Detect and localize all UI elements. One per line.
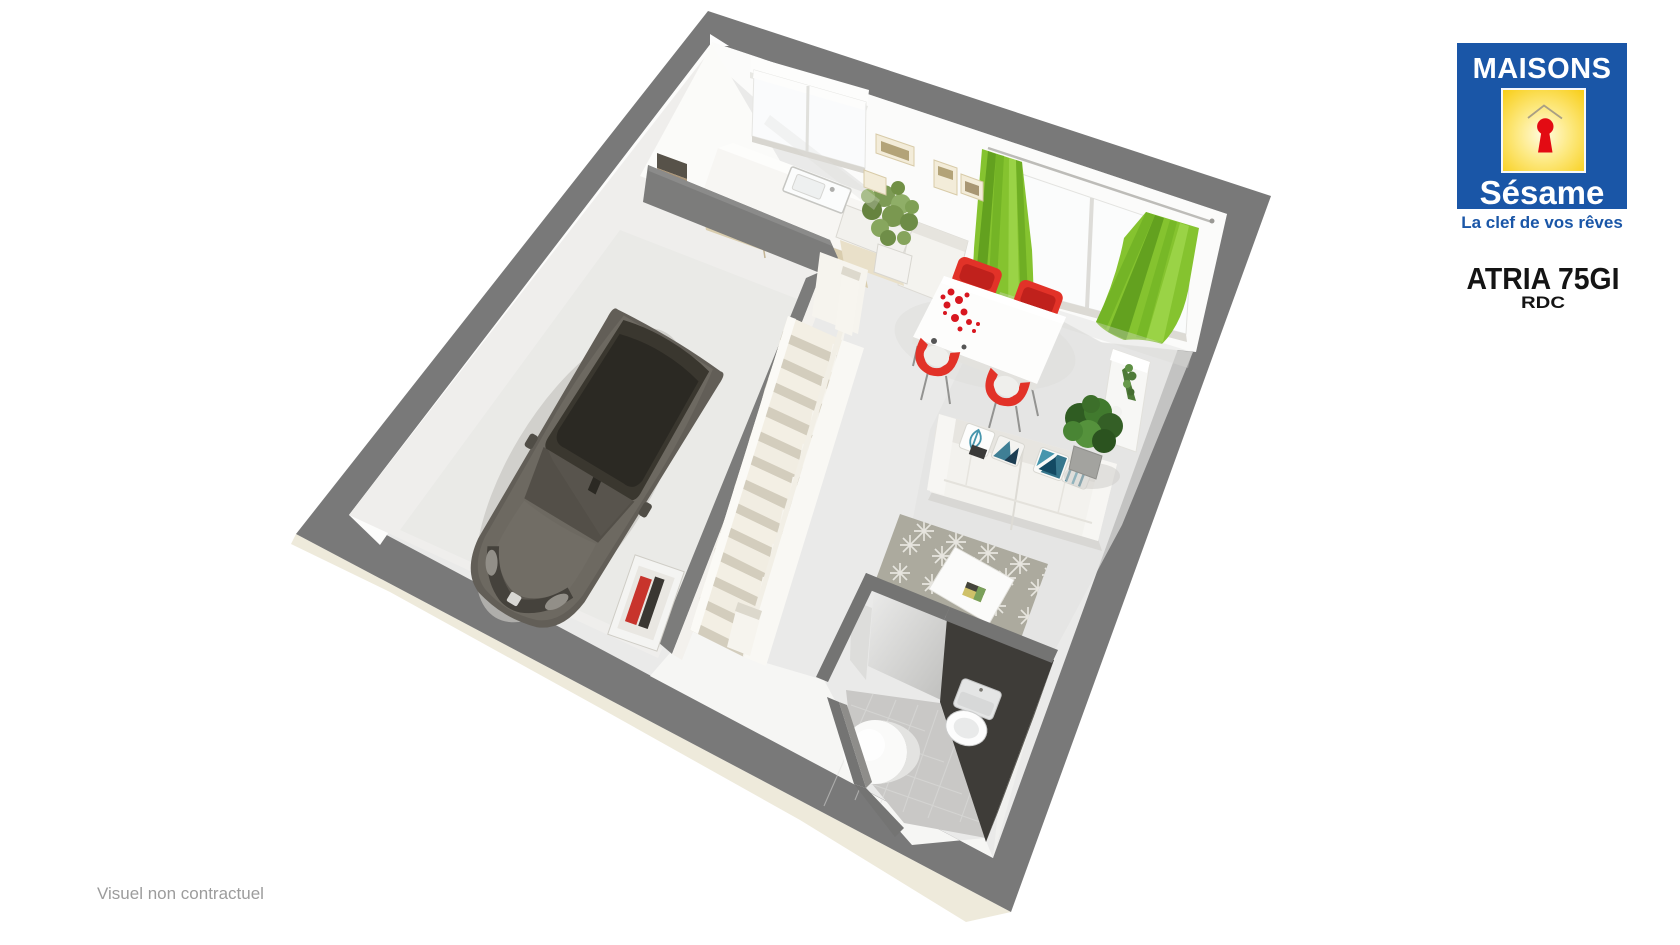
svg-text:RDC: RDC [1521,293,1565,312]
svg-text:ATRIA 75GI: ATRIA 75GI [1467,261,1620,296]
